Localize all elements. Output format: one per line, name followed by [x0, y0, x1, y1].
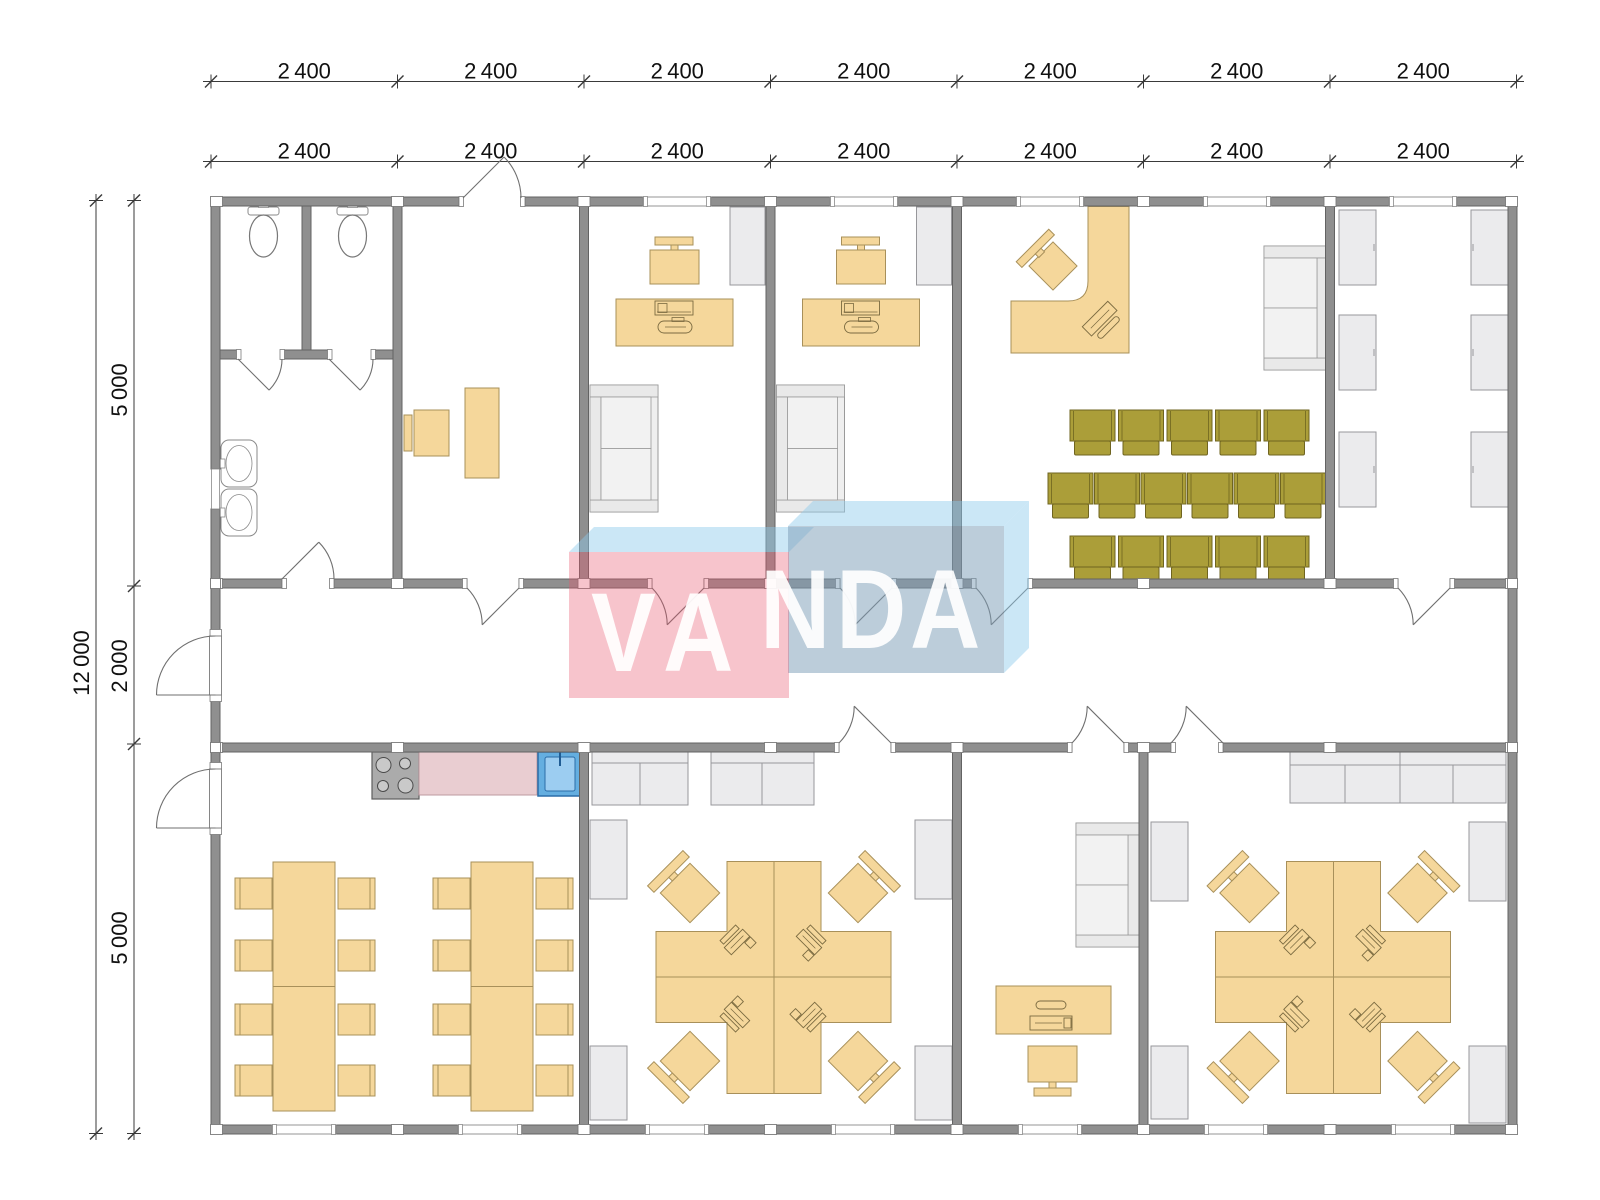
svg-text:V: V	[591, 571, 656, 696]
svg-text:2 400: 2 400	[837, 59, 890, 84]
svg-text:2 400: 2 400	[1210, 59, 1263, 84]
svg-text:2 400: 2 400	[1210, 139, 1263, 164]
svg-text:D: D	[836, 548, 906, 673]
svg-text:N: N	[760, 548, 830, 673]
svg-text:5 000: 5 000	[107, 363, 132, 416]
svg-text:2 400: 2 400	[837, 139, 890, 164]
svg-text:2 400: 2 400	[1397, 59, 1450, 84]
svg-text:2 400: 2 400	[651, 139, 704, 164]
svg-text:2 400: 2 400	[464, 59, 517, 84]
svg-text:2 400: 2 400	[1397, 139, 1450, 164]
svg-text:2 000: 2 000	[107, 639, 132, 692]
svg-text:2 400: 2 400	[278, 59, 331, 84]
svg-text:5 000: 5 000	[107, 911, 132, 964]
svg-text:2 400: 2 400	[278, 139, 331, 164]
svg-text:2 400: 2 400	[1024, 139, 1077, 164]
svg-text:2 400: 2 400	[1024, 59, 1077, 84]
svg-text:12 000: 12 000	[69, 630, 94, 696]
svg-text:2 400: 2 400	[651, 59, 704, 84]
svg-text:A: A	[663, 571, 733, 696]
svg-text:2 400: 2 400	[464, 139, 517, 164]
svg-text:A: A	[910, 548, 980, 673]
